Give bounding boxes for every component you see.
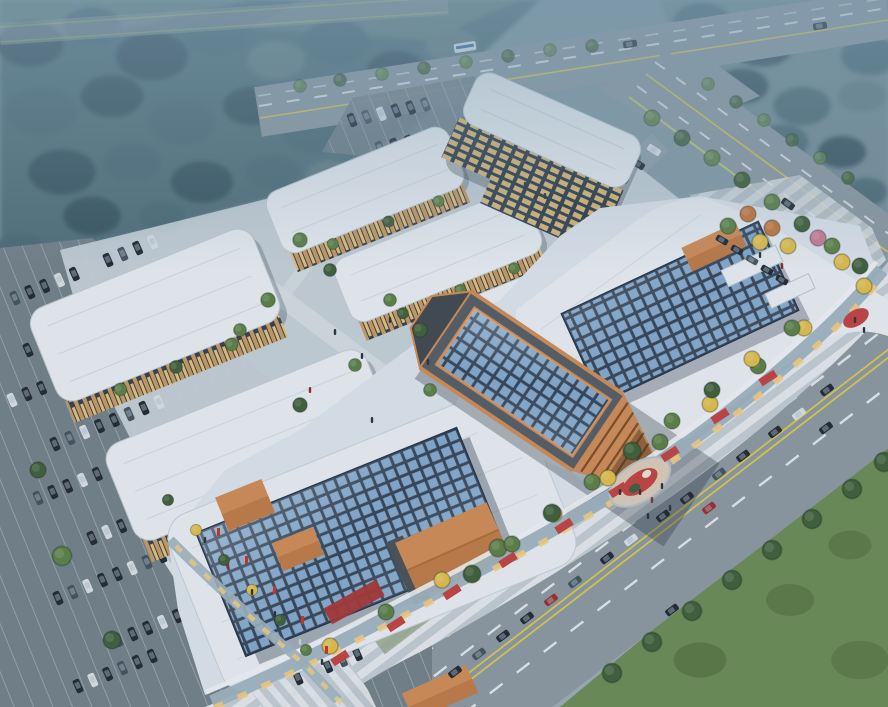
rendering-canvas bbox=[0, 0, 888, 707]
aerial-rendering bbox=[0, 0, 888, 707]
dusk-tint bbox=[0, 0, 888, 707]
